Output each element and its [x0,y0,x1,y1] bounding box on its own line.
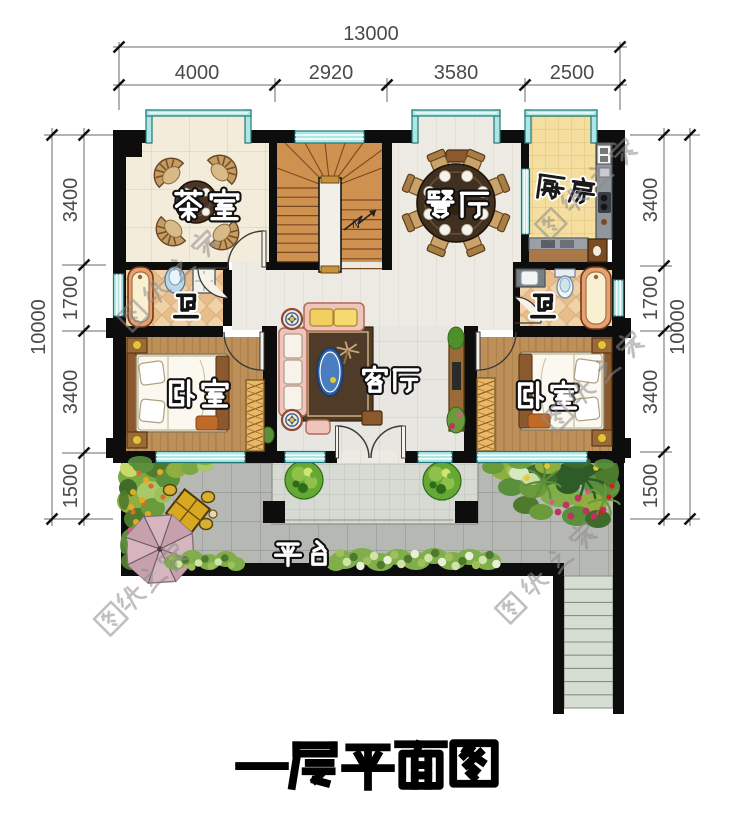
svg-text:2500: 2500 [550,62,595,84]
svg-text:1700: 1700 [60,276,82,321]
svg-text:1500: 1500 [60,464,82,509]
svg-text:3400: 3400 [640,178,662,223]
svg-text:10000: 10000 [28,299,50,355]
svg-text:3400: 3400 [640,370,662,415]
svg-text:3400: 3400 [60,178,82,223]
svg-text:2920: 2920 [309,62,354,84]
svg-text:1500: 1500 [640,464,662,509]
svg-text:1700: 1700 [640,276,662,321]
svg-text:N: N [352,219,360,231]
svg-text:4000: 4000 [175,62,220,84]
svg-text:13000: 13000 [343,23,399,45]
svg-text:3400: 3400 [60,370,82,415]
svg-text:3580: 3580 [434,62,479,84]
svg-text:10000: 10000 [667,299,689,355]
